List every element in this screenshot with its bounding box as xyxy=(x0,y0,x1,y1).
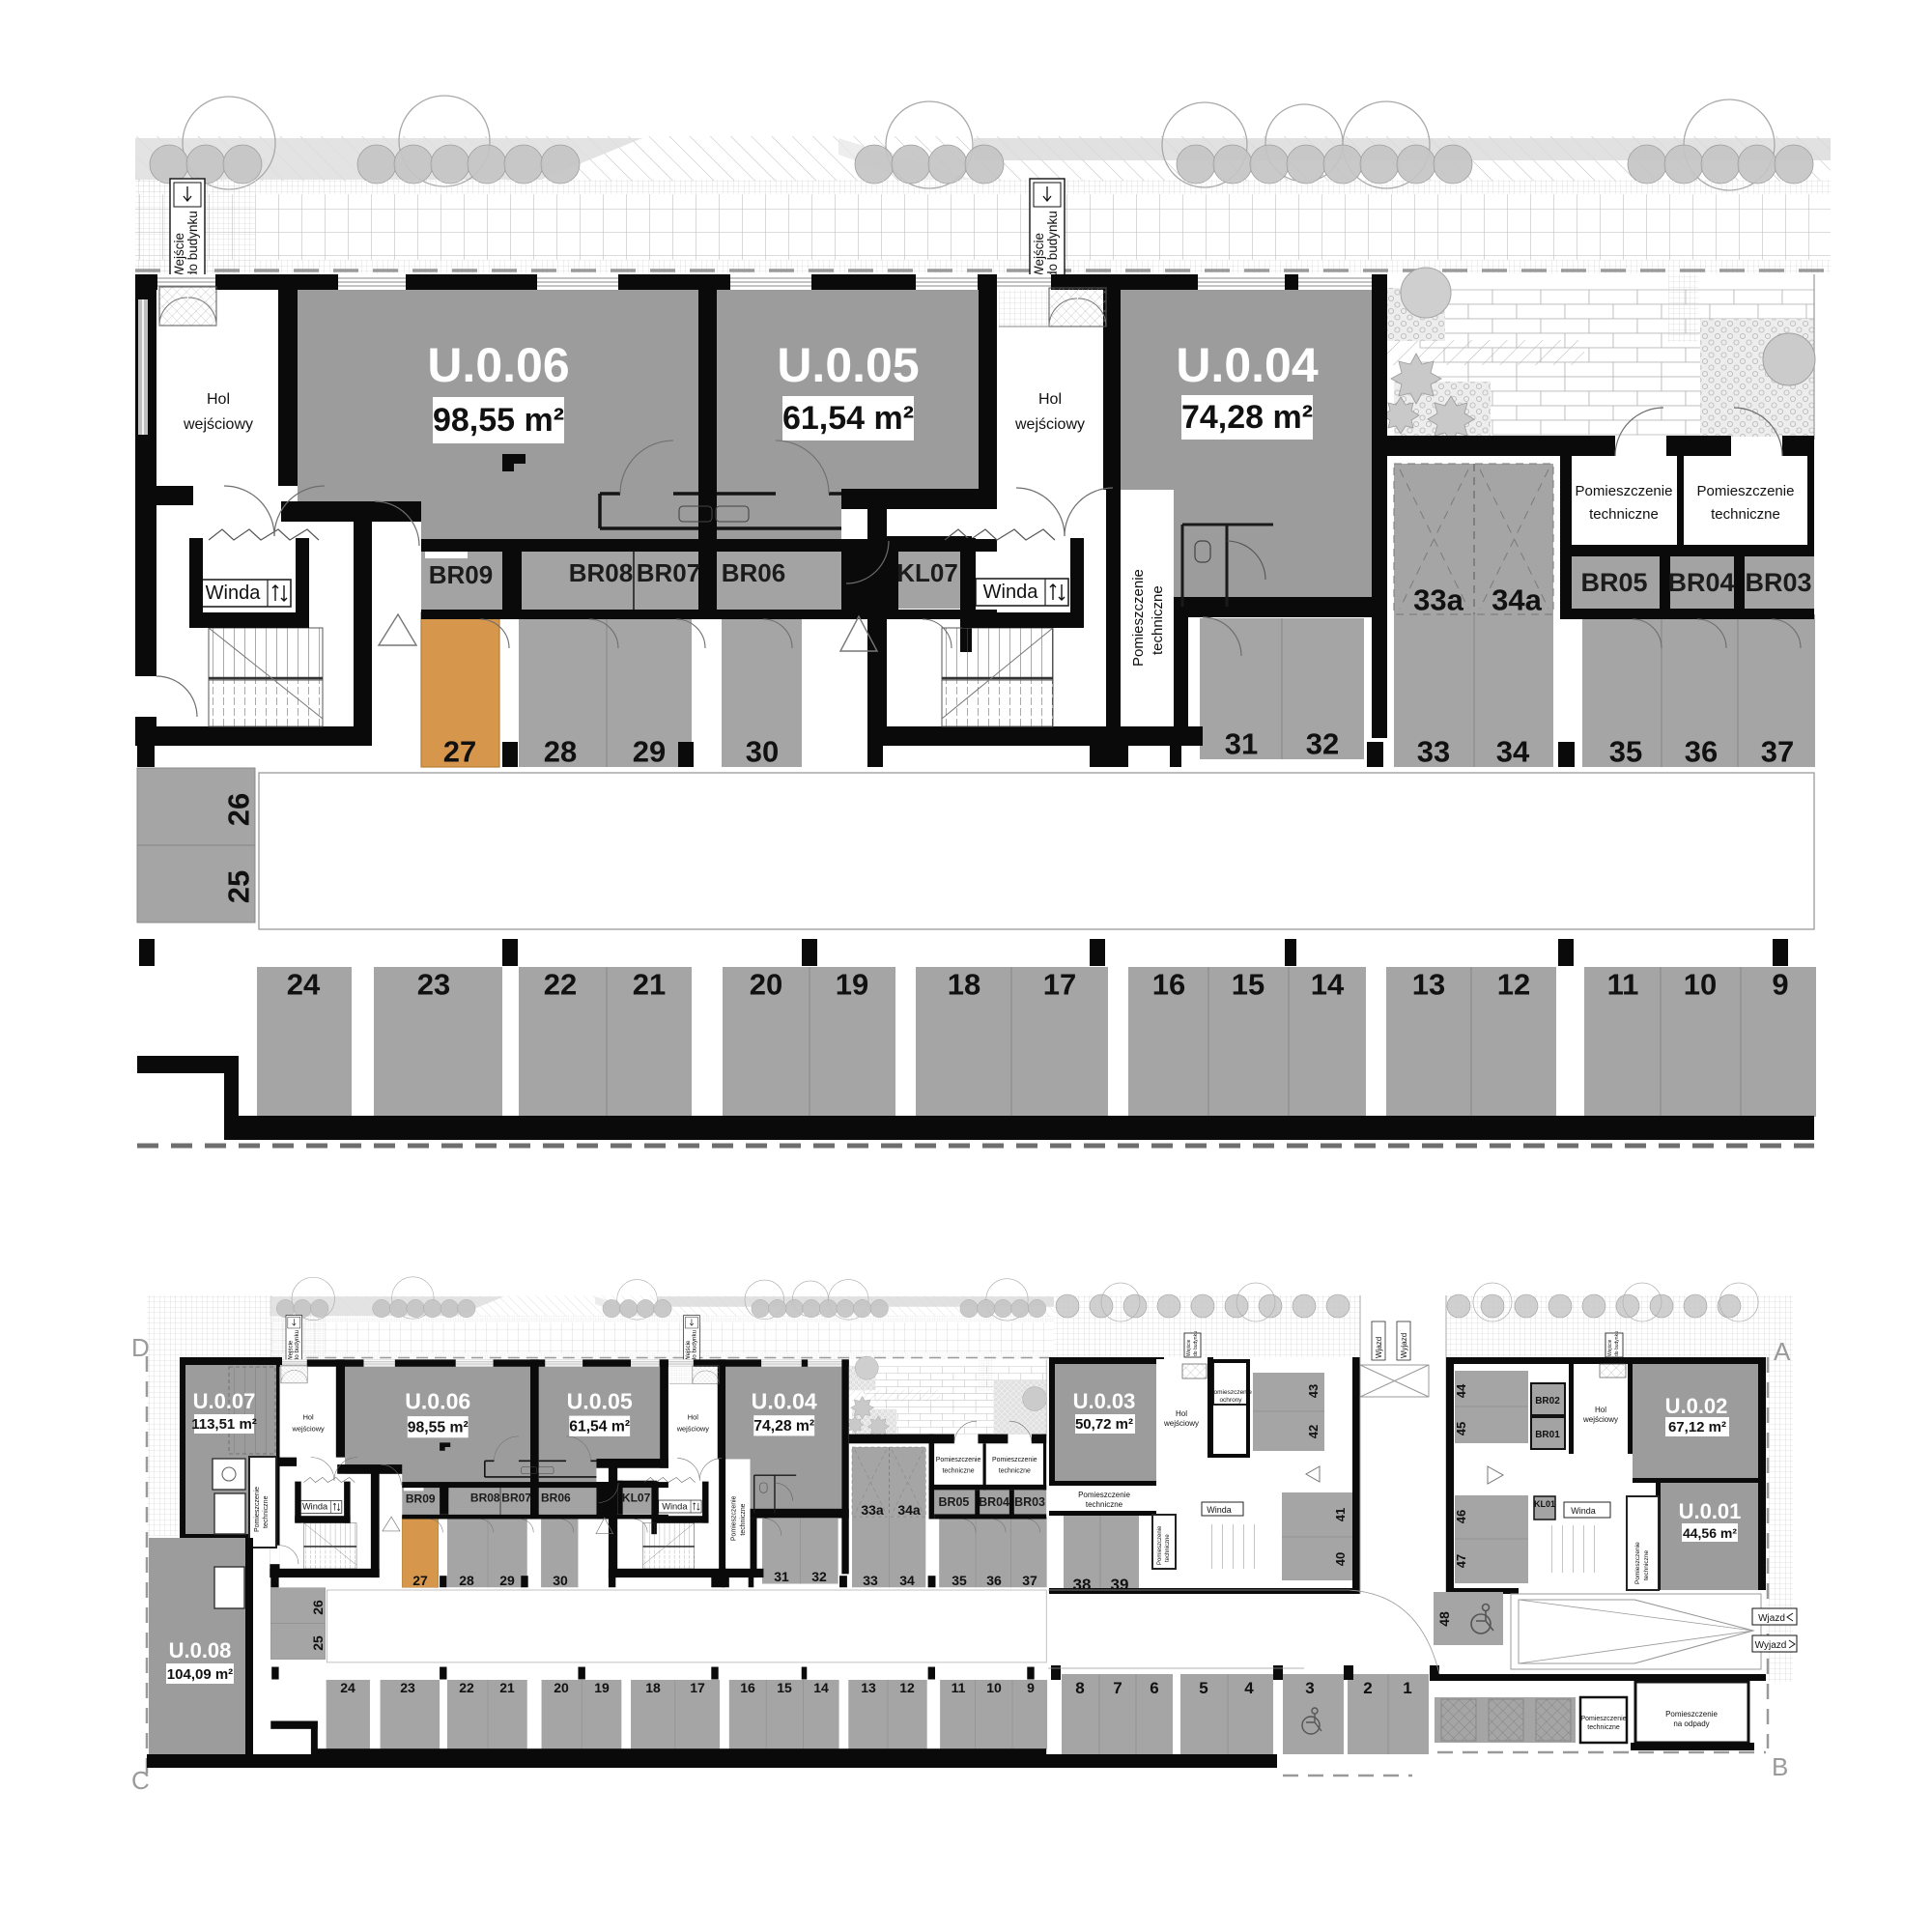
svg-text:20: 20 xyxy=(750,968,782,1002)
svg-text:46: 46 xyxy=(1454,1510,1468,1523)
svg-text:42: 42 xyxy=(1306,1425,1321,1438)
svg-text:BR07: BR07 xyxy=(637,558,700,587)
svg-text:15: 15 xyxy=(777,1680,792,1695)
svg-text:BR08: BR08 xyxy=(569,558,633,587)
svg-text:43: 43 xyxy=(1306,1384,1321,1398)
svg-text:Pomieszczenie: Pomieszczenie xyxy=(1209,1389,1252,1396)
svg-text:35: 35 xyxy=(1609,735,1642,769)
svg-text:21: 21 xyxy=(633,968,666,1002)
svg-text:23: 23 xyxy=(417,968,450,1002)
svg-text:4: 4 xyxy=(1244,1679,1254,1697)
svg-text:do budynku: do budynku xyxy=(1193,1331,1199,1356)
svg-text:U.0.06: U.0.06 xyxy=(427,338,569,392)
svg-text:29: 29 xyxy=(499,1573,515,1588)
svg-text:27: 27 xyxy=(412,1573,428,1588)
svg-text:BR01: BR01 xyxy=(1535,1430,1560,1440)
svg-text:34a: 34a xyxy=(897,1502,921,1518)
svg-text:techniczne: techniczne xyxy=(1086,1500,1123,1509)
svg-text:16: 16 xyxy=(1152,968,1185,1002)
svg-text:2: 2 xyxy=(1363,1679,1372,1697)
svg-text:Wyjazd: Wyjazd xyxy=(1755,1640,1787,1651)
svg-text:D: D xyxy=(131,1333,150,1362)
svg-text:Wejście: Wejście xyxy=(1607,1339,1613,1356)
svg-text:7: 7 xyxy=(1113,1679,1122,1697)
svg-text:13: 13 xyxy=(1412,968,1445,1002)
svg-text:Wejście: Wejście xyxy=(1186,1339,1192,1356)
svg-text:21: 21 xyxy=(499,1680,515,1695)
svg-text:ochrony: ochrony xyxy=(1219,1397,1242,1404)
svg-text:Winda: Winda xyxy=(206,582,262,604)
svg-text:do budynku: do budynku xyxy=(1614,1331,1620,1356)
svg-text:Hol: Hol xyxy=(1595,1406,1606,1414)
svg-text:10: 10 xyxy=(986,1680,1002,1695)
svg-text:36: 36 xyxy=(1685,735,1718,769)
svg-text:KL07: KL07 xyxy=(896,558,958,587)
svg-text:BR06: BR06 xyxy=(722,558,785,587)
svg-text:techniczne: techniczne xyxy=(1587,1724,1620,1731)
svg-text:Winda: Winda xyxy=(1571,1506,1596,1516)
svg-text:techniczne: techniczne xyxy=(1589,506,1659,523)
svg-text:14: 14 xyxy=(1311,968,1345,1002)
svg-text:BR09: BR09 xyxy=(429,560,493,589)
svg-text:na odpady: na odpady xyxy=(1673,1719,1709,1728)
svg-text:24: 24 xyxy=(340,1680,355,1695)
svg-text:61,54 m²: 61,54 m² xyxy=(782,400,914,437)
svg-text:BR04: BR04 xyxy=(1667,568,1734,597)
svg-text:32: 32 xyxy=(1306,727,1339,761)
svg-text:30: 30 xyxy=(746,735,779,769)
svg-text:50,72 m²: 50,72 m² xyxy=(1075,1416,1133,1433)
svg-text:wejściowy: wejściowy xyxy=(1582,1415,1618,1424)
svg-text:Wjazd: Wjazd xyxy=(1375,1337,1383,1358)
svg-text:Pomieszczenie: Pomieszczenie xyxy=(1697,483,1795,499)
svg-text:26: 26 xyxy=(222,793,256,826)
svg-text:31: 31 xyxy=(1225,727,1258,761)
svg-text:20: 20 xyxy=(554,1680,569,1695)
svg-text:Pomieszczenie: Pomieszczenie xyxy=(1665,1710,1718,1719)
svg-text:U.0.07: U.0.07 xyxy=(193,1389,256,1413)
svg-text:9: 9 xyxy=(1772,968,1788,1002)
svg-text:Pomieszczenie: Pomieszczenie xyxy=(254,1487,261,1532)
svg-text:Winda: Winda xyxy=(1207,1505,1232,1515)
svg-text:wejściowy: wejściowy xyxy=(183,416,253,433)
svg-text:104,09 m²: 104,09 m² xyxy=(167,1666,233,1683)
svg-text:techniczne: techniczne xyxy=(1165,1534,1171,1562)
svg-text:33a: 33a xyxy=(1413,583,1463,617)
svg-text:37: 37 xyxy=(1761,735,1794,769)
svg-text:wejściowy: wejściowy xyxy=(1014,416,1085,433)
svg-text:U.0.04: U.0.04 xyxy=(1176,338,1319,392)
svg-text:35: 35 xyxy=(952,1573,967,1588)
svg-text:12: 12 xyxy=(899,1680,915,1695)
svg-text:techniczne: techniczne xyxy=(1711,506,1780,523)
svg-text:U.0.05: U.0.05 xyxy=(777,338,919,392)
svg-text:29: 29 xyxy=(633,735,666,769)
svg-text:techniczne: techniczne xyxy=(1643,1550,1650,1580)
svg-text:40: 40 xyxy=(1333,1552,1348,1566)
svg-text:18: 18 xyxy=(645,1680,661,1695)
svg-text:33a: 33a xyxy=(861,1502,884,1518)
svg-text:34a: 34a xyxy=(1492,583,1542,617)
svg-text:Hol: Hol xyxy=(1176,1409,1187,1418)
svg-text:9: 9 xyxy=(1027,1680,1035,1695)
svg-text:Hol: Hol xyxy=(207,391,230,408)
svg-text:A: A xyxy=(1774,1337,1791,1366)
svg-text:11: 11 xyxy=(952,1680,966,1695)
svg-text:U.0.01: U.0.01 xyxy=(1679,1499,1742,1523)
svg-text:Pomieszczenie: Pomieszczenie xyxy=(1078,1491,1130,1499)
svg-text:34: 34 xyxy=(899,1573,915,1588)
svg-text:BR05: BR05 xyxy=(1580,568,1647,597)
svg-text:17: 17 xyxy=(1043,968,1076,1002)
svg-text:Winda: Winda xyxy=(983,582,1039,603)
svg-text:32: 32 xyxy=(811,1569,827,1584)
svg-text:do budynku: do budynku xyxy=(185,211,200,278)
svg-text:Wejście: Wejście xyxy=(172,233,186,278)
svg-text:8: 8 xyxy=(1075,1679,1084,1697)
svg-text:41: 41 xyxy=(1333,1508,1348,1521)
svg-text:22: 22 xyxy=(544,968,577,1002)
svg-text:Wjazd: Wjazd xyxy=(1758,1613,1785,1624)
svg-text:16: 16 xyxy=(740,1680,755,1695)
svg-text:U.0.03: U.0.03 xyxy=(1073,1389,1136,1413)
svg-text:U.0.08: U.0.08 xyxy=(169,1638,232,1662)
svg-text:5: 5 xyxy=(1199,1679,1207,1697)
svg-text:18: 18 xyxy=(948,968,980,1002)
svg-text:techniczne: techniczne xyxy=(263,1495,270,1528)
svg-text:1: 1 xyxy=(1403,1679,1411,1697)
svg-text:Pomieszczenie: Pomieszczenie xyxy=(1130,569,1147,667)
svg-text:47: 47 xyxy=(1454,1554,1468,1568)
svg-text:B: B xyxy=(1772,1752,1788,1781)
svg-text:34: 34 xyxy=(1496,735,1530,769)
svg-text:31: 31 xyxy=(774,1569,789,1584)
svg-text:25: 25 xyxy=(310,1635,326,1651)
svg-text:98,55 m²: 98,55 m² xyxy=(433,402,564,439)
svg-text:C: C xyxy=(131,1766,150,1795)
svg-text:27: 27 xyxy=(443,735,476,769)
svg-text:KL01: KL01 xyxy=(1534,1499,1555,1509)
svg-text:74,28 m²: 74,28 m² xyxy=(1181,399,1313,436)
svg-text:24: 24 xyxy=(287,968,321,1002)
svg-text:37: 37 xyxy=(1022,1573,1037,1588)
svg-text:3: 3 xyxy=(1305,1679,1314,1697)
svg-text:Hol: Hol xyxy=(1038,391,1062,408)
svg-text:Pomieszczenie: Pomieszczenie xyxy=(1580,1716,1626,1722)
svg-text:22: 22 xyxy=(459,1680,474,1695)
svg-text:Pomieszczenie: Pomieszczenie xyxy=(1576,483,1673,499)
svg-text:28: 28 xyxy=(544,735,577,769)
svg-text:techniczne: techniczne xyxy=(1150,585,1166,655)
svg-text:BR03: BR03 xyxy=(1745,568,1811,597)
svg-text:48: 48 xyxy=(1436,1611,1452,1627)
svg-text:14: 14 xyxy=(813,1680,829,1695)
svg-text:26: 26 xyxy=(310,1600,326,1615)
svg-text:6: 6 xyxy=(1150,1679,1158,1697)
svg-text:11: 11 xyxy=(1607,968,1639,1002)
svg-text:23: 23 xyxy=(400,1680,415,1695)
svg-text:44: 44 xyxy=(1454,1383,1468,1398)
svg-text:15: 15 xyxy=(1232,968,1264,1002)
svg-text:U.0.02: U.0.02 xyxy=(1665,1394,1728,1418)
svg-text:12: 12 xyxy=(1497,968,1530,1002)
svg-text:17: 17 xyxy=(690,1680,705,1695)
svg-text:33: 33 xyxy=(1417,735,1450,769)
svg-text:44,56 m²: 44,56 m² xyxy=(1683,1525,1737,1541)
svg-text:BR02: BR02 xyxy=(1535,1396,1560,1406)
svg-text:10: 10 xyxy=(1684,968,1717,1002)
svg-text:wejściowy: wejściowy xyxy=(1163,1419,1199,1428)
svg-text:67,12 m²: 67,12 m² xyxy=(1668,1419,1726,1435)
svg-text:Wyjazd: Wyjazd xyxy=(1400,1333,1408,1358)
svg-text:19: 19 xyxy=(836,968,868,1002)
svg-text:19: 19 xyxy=(594,1680,610,1695)
svg-text:28: 28 xyxy=(459,1573,474,1588)
svg-text:36: 36 xyxy=(986,1573,1002,1588)
svg-text:113,51 m²: 113,51 m² xyxy=(191,1416,257,1433)
svg-text:Pomieszczenie: Pomieszczenie xyxy=(1634,1542,1641,1584)
svg-text:do budynku: do budynku xyxy=(1045,211,1060,278)
svg-text:Wejście: Wejście xyxy=(1032,233,1046,278)
svg-text:13: 13 xyxy=(861,1680,876,1695)
svg-text:45: 45 xyxy=(1454,1422,1468,1435)
svg-text:30: 30 xyxy=(553,1573,568,1588)
svg-text:Pomieszczenie: Pomieszczenie xyxy=(1157,1525,1163,1565)
svg-text:33: 33 xyxy=(863,1573,878,1588)
svg-text:25: 25 xyxy=(222,870,256,903)
